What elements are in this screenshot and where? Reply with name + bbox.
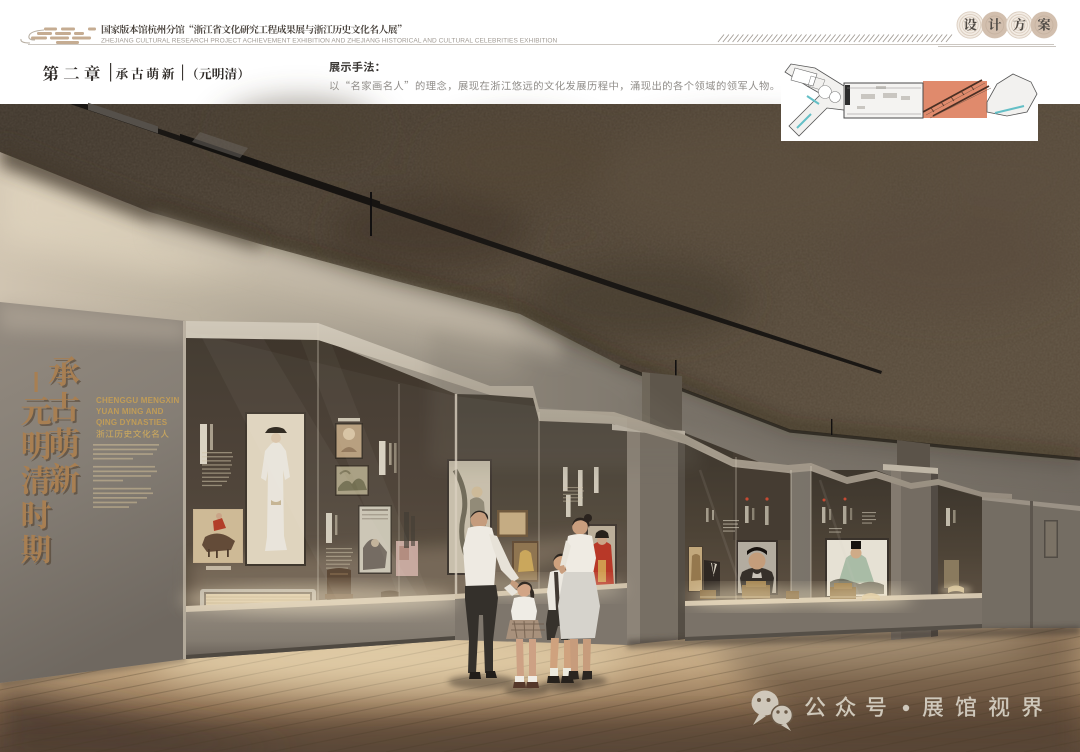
svg-text:ZHEJIANG CULTURAL RESEARCH PRO: ZHEJIANG CULTURAL RESEARCH PROJECT ACHIE…	[101, 38, 558, 45]
svg-text:YUAN MING AND: YUAN MING AND	[96, 407, 164, 416]
svg-text:CHENGGU MENGXIN: CHENGGU MENGXIN	[96, 396, 179, 405]
svg-text:QING DYNASTIES: QING DYNASTIES	[96, 418, 168, 427]
